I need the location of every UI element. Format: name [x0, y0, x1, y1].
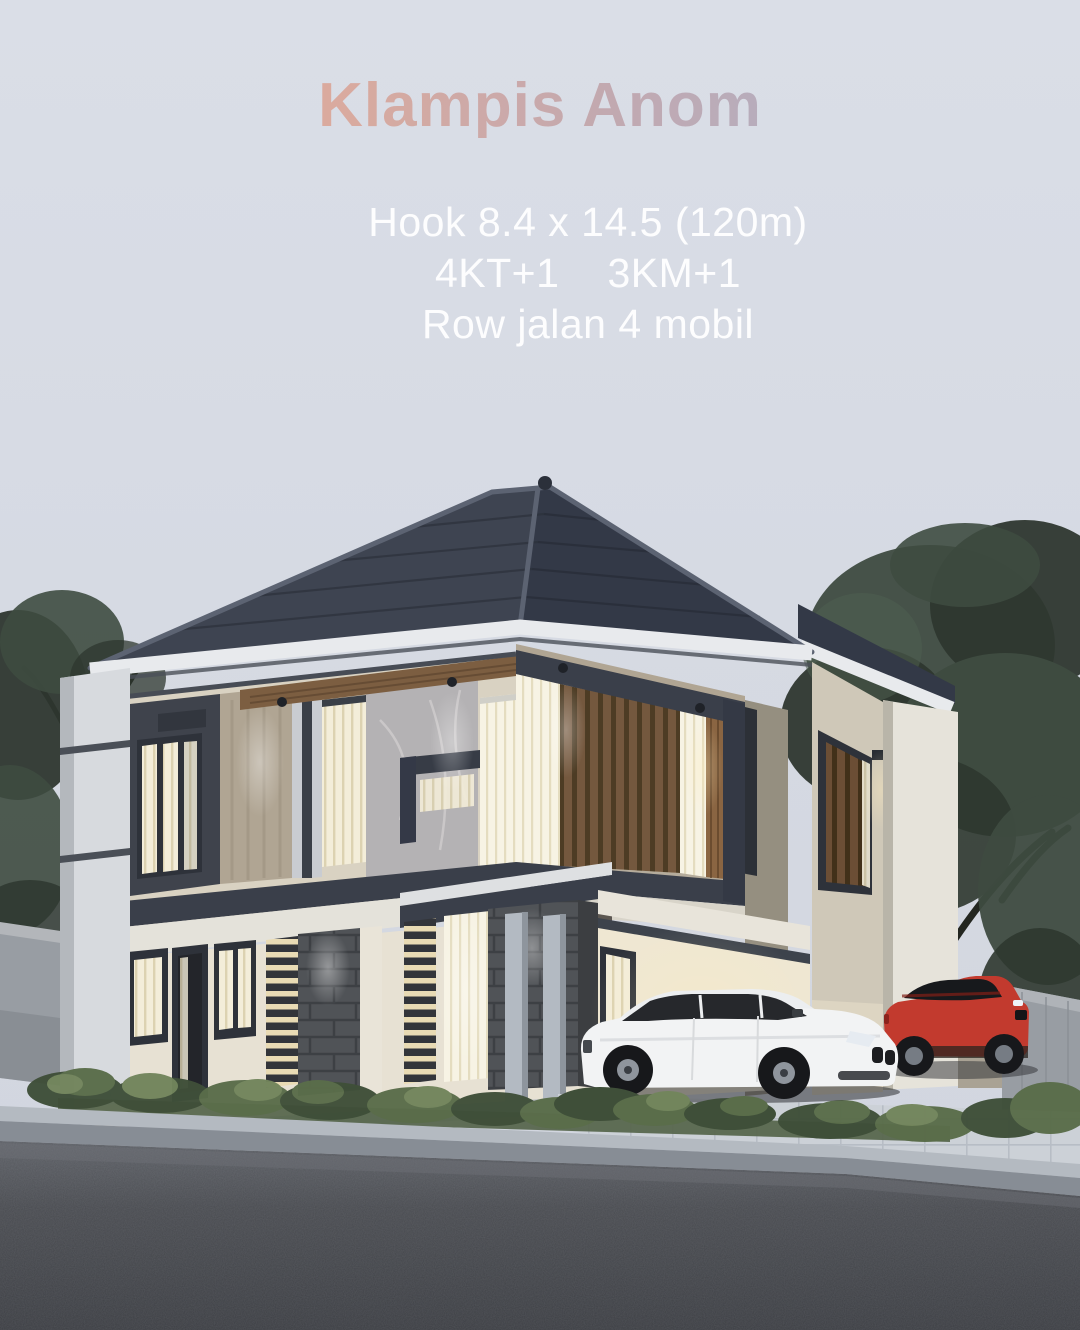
property-specs: Hook 8.4 x 14.5 (120m) 4KT+1 3KM+1 Row j… [368, 197, 807, 350]
upper-window-mid [322, 695, 366, 867]
spec-bedrooms: 4KT+1 [435, 248, 559, 299]
spec-rooms: 4KT+1 3KM+1 [368, 248, 807, 299]
property-poster: Klampis Anom Hook 8.4 x 14.5 (120m) 4KT+… [0, 0, 1080, 1330]
spec-bathrooms: 3KM+1 [607, 248, 741, 299]
corner-window [480, 694, 516, 888]
project-title: Klampis Anom [0, 74, 1080, 138]
ground-slat-window-2 [404, 918, 436, 1084]
corner-pilaster [60, 668, 130, 1112]
ground-slat-window-1 [266, 936, 298, 1088]
spec-lot-size: Hook 8.4 x 14.5 (120m) [368, 197, 807, 248]
ground-pilaster [360, 926, 382, 1094]
spec-road-access: Row jalan 4 mobil [368, 299, 807, 350]
roof-finial [538, 476, 552, 490]
balcony-frame-right [723, 699, 745, 905]
